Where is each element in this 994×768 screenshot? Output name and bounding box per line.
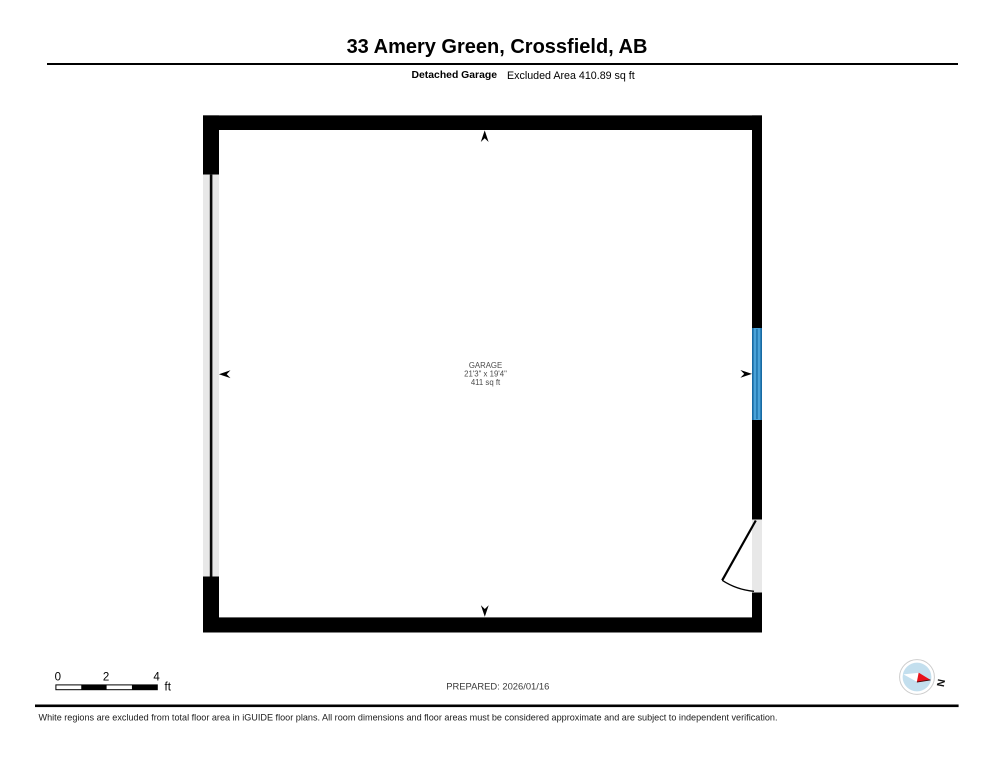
svg-text:411 sq ft: 411 sq ft [471,378,501,387]
svg-text:White regions are excluded fro: White regions are excluded from total fl… [39,713,778,723]
svg-text:4: 4 [153,672,160,684]
svg-text:2: 2 [103,672,109,684]
svg-text:ft: ft [165,682,172,694]
svg-text:N: N [934,678,947,688]
svg-text:PREPARED: 2026/01/16: PREPARED: 2026/01/16 [446,680,549,691]
svg-text:0: 0 [55,672,61,684]
